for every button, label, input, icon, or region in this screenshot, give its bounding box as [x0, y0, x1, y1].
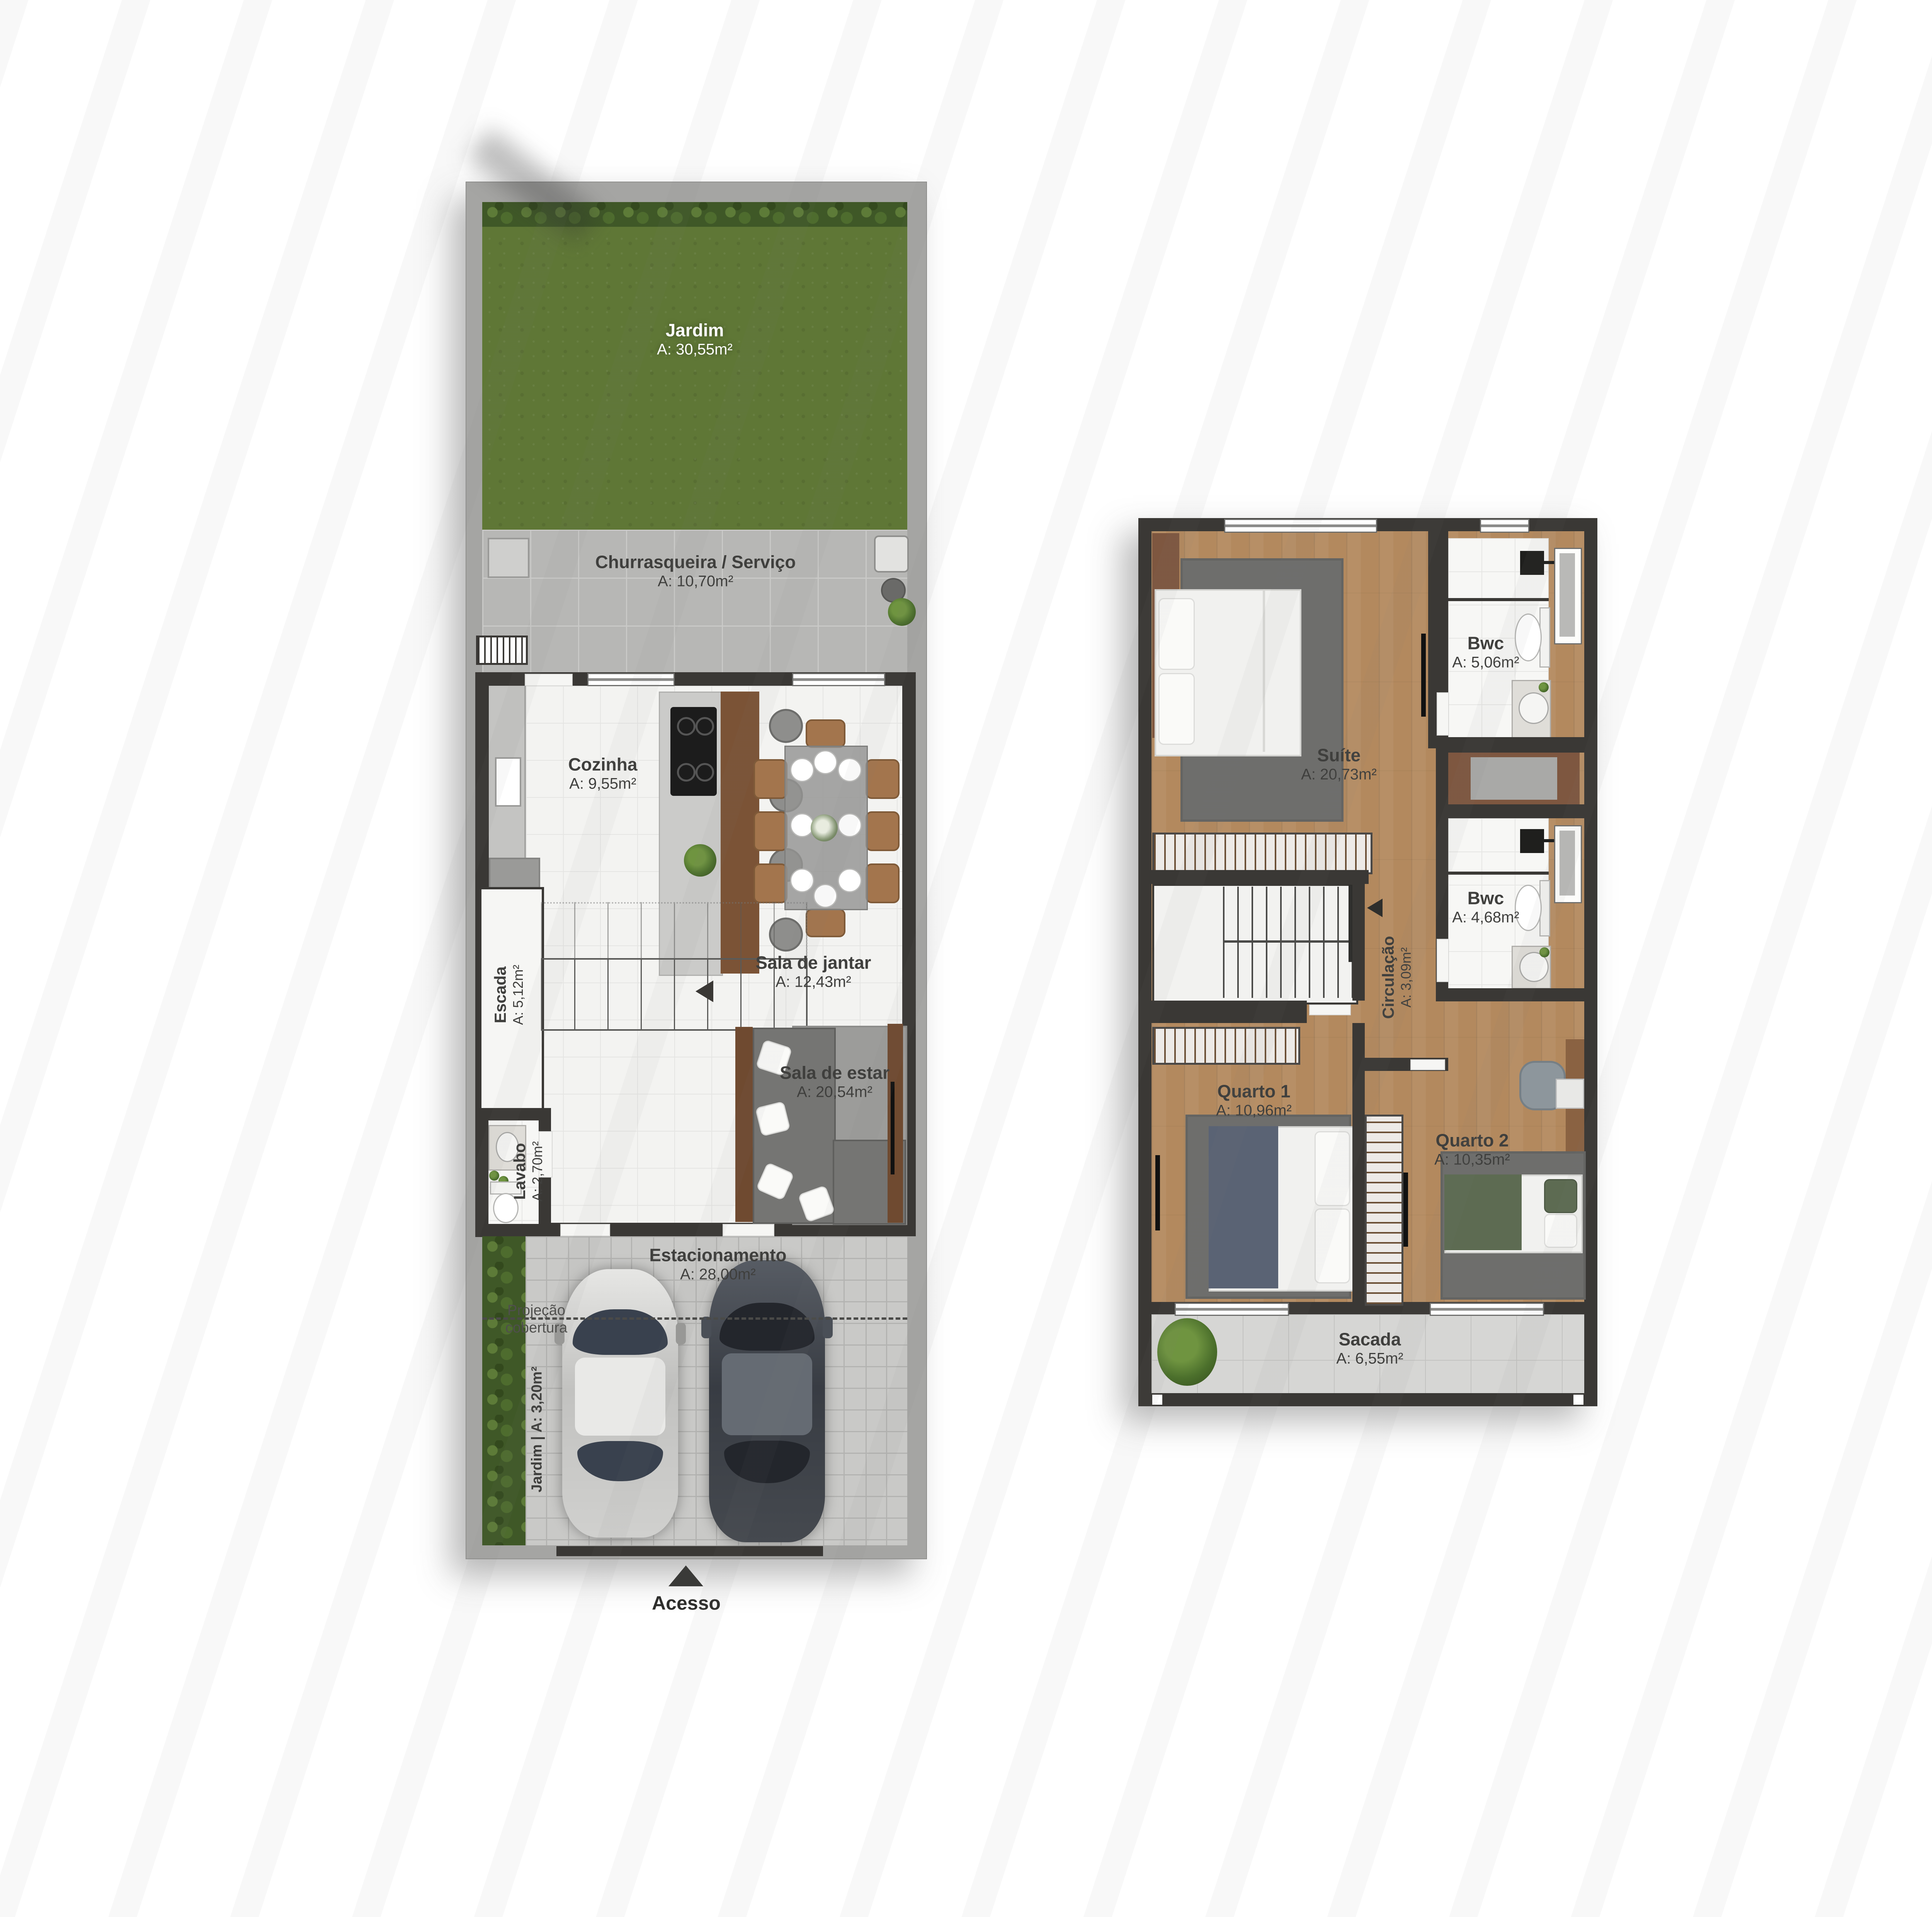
dining-chair — [753, 759, 787, 799]
suite-pillow — [1158, 673, 1195, 745]
linen-bottom-wall — [1436, 804, 1597, 818]
cozinha-label: Cozinha A: 9,55m² — [568, 754, 638, 793]
suite-name: Suíte — [1317, 744, 1361, 765]
dining-chair — [866, 863, 900, 903]
cooktop-burner — [677, 717, 696, 736]
sacada-area: A: 6,55m² — [1336, 1350, 1403, 1368]
car-mirror — [823, 1317, 833, 1338]
sala-jantar-area: A: 12,43m² — [776, 973, 851, 991]
bwc-suite-niche-inner — [1560, 553, 1575, 637]
bwc-social-label: Bwc A: 4,68m² — [1452, 887, 1519, 926]
dining-chair — [806, 719, 845, 748]
jardim-area: A: 30,55m² — [657, 341, 733, 359]
circulacao-label: Circulação A: 3,09m² — [1379, 936, 1414, 1019]
bwc-social-plant — [1539, 947, 1549, 957]
quarto1-door-leaf — [1309, 1004, 1351, 1015]
living-door-gap — [723, 1224, 774, 1236]
car-rear-window — [577, 1441, 663, 1481]
quarto2-area: A: 10,35m² — [1434, 1151, 1510, 1169]
sala-estar-name: Sala de estar — [780, 1062, 889, 1083]
stair-direction-arrow — [696, 981, 713, 1002]
stair-mid-landing-line — [1223, 940, 1352, 943]
quarto1-balcony-door — [1175, 1303, 1289, 1316]
estacionamento-label: Estacionamento A: 28,00m² — [649, 1244, 786, 1283]
bwc-suite-name: Bwc — [1468, 632, 1504, 653]
quarto1-tv — [1155, 1155, 1160, 1230]
lavabo-area: A: 2,70m² — [529, 1141, 546, 1202]
cooktop-burner — [677, 763, 696, 782]
dining-chair — [866, 759, 900, 799]
car-windshield — [573, 1309, 668, 1355]
bwc-suite-plant — [1539, 682, 1549, 692]
sofa-side-panel — [735, 1027, 753, 1222]
circulation-arrow — [1367, 899, 1383, 917]
jardim-lateral-text: Jardim | A: 3,20m² — [529, 1366, 546, 1492]
quarto2-pillow — [1544, 1179, 1577, 1213]
suite-tv — [1421, 634, 1426, 717]
bwc-suite-window — [1480, 519, 1529, 533]
escada-area: A: 5,12m² — [510, 965, 526, 1025]
projecao-line2: cobertura — [505, 1319, 568, 1337]
bwc-suite-bottom-wall — [1436, 737, 1597, 753]
bwc-social-niche-inner — [1560, 831, 1575, 896]
quarto1-pillow — [1315, 1208, 1350, 1283]
quarto1-closet — [1152, 1027, 1300, 1065]
front-gate — [556, 1546, 823, 1556]
rail-post — [1573, 1395, 1583, 1405]
quarto2-duvet — [1444, 1174, 1522, 1250]
cozinha-name: Cozinha — [568, 754, 638, 775]
car-dark — [709, 1260, 825, 1542]
plate — [838, 868, 862, 892]
estacionamento-name: Estacionamento — [649, 1244, 786, 1265]
car-silver — [562, 1269, 678, 1538]
island-plant — [684, 844, 716, 877]
quarto1-label: Quarto 1 A: 10,96m² — [1216, 1081, 1292, 1120]
churrasqueira-label: Churrasqueira / Serviço A: 10,70m² — [595, 551, 796, 590]
kitchen-window — [587, 673, 675, 686]
rail-post — [1152, 1395, 1162, 1405]
bwc-suite-area: A: 5,06m² — [1452, 654, 1519, 672]
kitchen-sink — [495, 757, 521, 807]
quarto1-name: Quarto 1 — [1217, 1081, 1290, 1101]
jardim-label: Jardim A: 30,55m² — [657, 319, 733, 359]
plate — [813, 750, 837, 774]
service-sink — [874, 535, 909, 573]
churrasqueira-area: A: 10,70m² — [658, 573, 733, 591]
bwc-suite-shower-divider — [1448, 598, 1549, 601]
bwc-social-area: A: 4,68m² — [1452, 909, 1519, 927]
bwc-social-shower-head — [1520, 829, 1544, 853]
terrace-plant — [888, 598, 916, 626]
bwc-social-door-gap — [1437, 939, 1449, 982]
projecao-label: Projeção cobertura — [505, 1302, 568, 1337]
bwc-suite-label: Bwc A: 5,06m² — [1452, 632, 1519, 671]
projecao-line1: Projeção — [507, 1302, 565, 1319]
car-mirror — [676, 1323, 686, 1344]
acesso-label: Acesso — [652, 1592, 721, 1615]
bwc-social-name: Bwc — [1468, 887, 1504, 908]
quarto1-pillow — [1315, 1131, 1350, 1206]
escada-label: Escada A: 5,12m² — [491, 965, 526, 1025]
car-roof — [722, 1353, 812, 1435]
suite-pillow — [1158, 598, 1195, 670]
light-streaks-overlay — [0, 0, 1932, 1917]
quarto2-name: Quarto 2 — [1435, 1130, 1509, 1151]
suite-area: A: 20,73m² — [1301, 766, 1377, 784]
sala-jantar-name: Sala de jantar — [755, 952, 871, 973]
fridge — [489, 858, 540, 889]
dining-chair — [866, 811, 900, 851]
jardim-lateral-label: Jardim | A: 3,20m² — [529, 1366, 546, 1492]
suite-closet — [1152, 833, 1372, 874]
lavabo-label: Lavabo A: 2,70m² — [510, 1141, 546, 1202]
churrasqueira-name: Churrasqueira / Serviço — [595, 551, 796, 572]
sacada-name: Sacada — [1338, 1329, 1401, 1349]
bbq-bench — [488, 538, 529, 578]
access-arrow — [668, 1565, 703, 1586]
bar-stool — [769, 709, 803, 743]
dining-window — [792, 673, 885, 686]
quarto2-balcony-door — [1430, 1303, 1544, 1316]
acesso-text: Acesso — [652, 1592, 721, 1615]
cooktop-burner — [696, 763, 714, 782]
bwc-social-shower-divider — [1448, 872, 1549, 875]
bwc-left-wall — [1436, 518, 1448, 1001]
sala-jantar-label: Sala de jantar A: 12,43m² — [755, 952, 871, 991]
quarto1-right-wall — [1352, 1023, 1365, 1302]
plate — [838, 758, 862, 782]
lavabo-name: Lavabo — [510, 1143, 529, 1200]
dining-chair — [753, 811, 787, 851]
side-entry-steps — [476, 636, 528, 665]
stairs-right-wall — [1352, 884, 1365, 1001]
quarto2-pillow — [1544, 1214, 1577, 1248]
sala-estar-label: Sala de estar A: 20,54m² — [780, 1062, 889, 1101]
quarto2-label: Quarto 2 A: 10,35m² — [1434, 1130, 1510, 1169]
sala-estar-area: A: 20,54m² — [797, 1083, 872, 1101]
stair-projection-dashed — [541, 902, 808, 960]
circulacao-area: A: 3,09m² — [1398, 947, 1414, 1008]
suite-duvet-fold — [1263, 591, 1265, 752]
dining-chair — [753, 863, 787, 903]
plate — [790, 868, 814, 892]
bwc-suite-shower-head — [1520, 551, 1544, 575]
suite-closet-wall — [1138, 870, 1369, 884]
car-roof — [575, 1358, 665, 1436]
side-garden-strip — [482, 1236, 526, 1545]
cooktop-burner — [696, 717, 714, 736]
plate — [813, 884, 837, 908]
plate — [838, 813, 862, 837]
tv-panel — [888, 1024, 903, 1223]
suite-label: Suíte A: 20,73m² — [1301, 744, 1377, 783]
suite-window — [1224, 519, 1377, 533]
laptop — [1556, 1079, 1584, 1109]
living-door-gap — [560, 1224, 610, 1236]
floorplan-image: Jardim A: 30,55m² Churrasqueira / Serviç… — [0, 0, 1932, 1917]
bwc-suite-door-gap — [1437, 692, 1449, 736]
table-centerpiece — [811, 814, 838, 841]
service-door-gap — [525, 674, 573, 686]
circulacao-name: Circulação — [1379, 936, 1398, 1019]
bwc-social-bottom-wall — [1436, 988, 1597, 1001]
jardim-name: Jardim — [666, 319, 724, 340]
sacada-plant — [1157, 1318, 1217, 1386]
wall-below-stairs — [1138, 1001, 1307, 1023]
sacada-label: Sacada A: 6,55m² — [1336, 1329, 1403, 1368]
dining-chair — [806, 909, 845, 937]
car-windshield — [719, 1303, 815, 1351]
plate — [790, 758, 814, 782]
lavabo-plant — [489, 1171, 499, 1181]
garden-lawn — [482, 202, 907, 530]
quarto1-throw — [1209, 1126, 1278, 1288]
linen-closet-inner — [1471, 757, 1557, 800]
estacionamento-area: A: 28,00m² — [680, 1266, 756, 1284]
tv — [891, 1082, 895, 1174]
car-rear-window — [724, 1441, 810, 1483]
quarto2-tv — [1403, 1173, 1408, 1247]
quarto2-closet — [1365, 1115, 1403, 1306]
cozinha-area: A: 9,55m² — [569, 775, 636, 793]
bwc-suite-basin — [1519, 692, 1549, 724]
car-mirror — [701, 1317, 711, 1338]
quarto1-area: A: 10,96m² — [1216, 1102, 1292, 1120]
quarto2-door-leaf — [1410, 1059, 1445, 1070]
escada-name: Escada — [491, 966, 510, 1023]
